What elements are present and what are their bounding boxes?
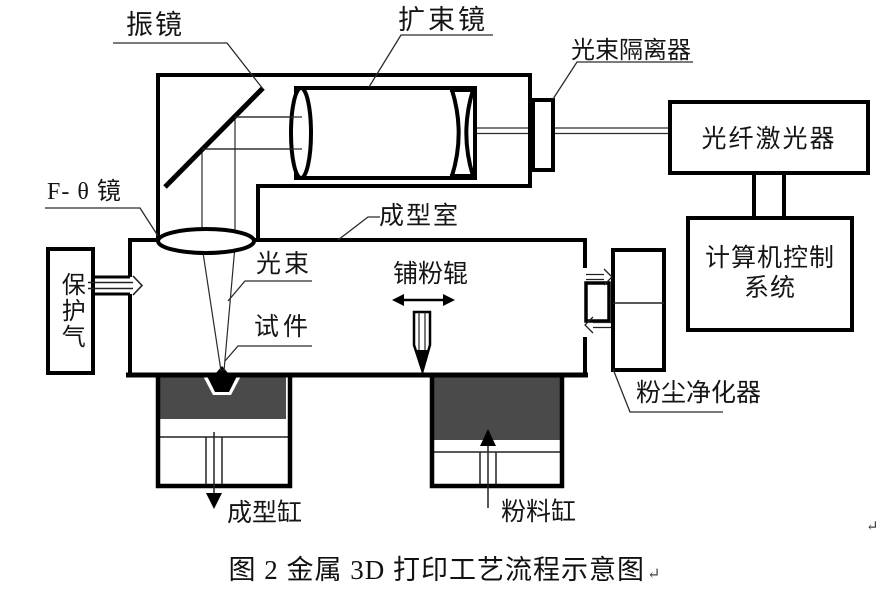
beam-expander-leader (369, 35, 493, 87)
dust-purifier-assembly (585, 250, 664, 370)
light-beam-label: 光束 (256, 252, 312, 278)
specimen-label: 试件 (254, 315, 312, 341)
fiber-laser-label: 光纤激光器 (670, 127, 868, 153)
galvanometer-mirror (165, 88, 263, 187)
down-arrow-icon (206, 493, 222, 509)
computer-control-label: 计算机控制 系统 (688, 244, 852, 304)
melt-spot (216, 366, 228, 373)
beam-expander-label: 扩束镜 (398, 6, 488, 34)
powder-cylinder-label: 粉料缸 (501, 500, 576, 526)
forming-chamber-leader (338, 217, 380, 240)
laser-computer-link (754, 173, 784, 218)
beam-expander-tube (296, 88, 475, 178)
right-arrowhead-icon (443, 294, 455, 306)
stray-paragraph-return-icon: ↵ (866, 517, 879, 536)
left-arrowhead-icon (392, 294, 404, 306)
f-theta-lens-label: F- θ 镜 (47, 180, 122, 205)
f-theta-leader (45, 208, 158, 236)
dust-purifier-label: 粉尘净化器 (636, 381, 761, 407)
scanner-head (158, 75, 553, 240)
figure-metal-3d-printing-schematic: 振镜 扩束镜 光束隔离器 F- θ 镜 成型室 光束 铺粉辊 试件 保护气 粉尘… (0, 0, 890, 600)
computer-control-label-line2: 系统 (688, 274, 852, 304)
figure-caption-row: 图 2 金属 3D 打印工艺流程示意图↵ (0, 548, 890, 587)
powder-cylinder (432, 375, 562, 508)
gas-inlet-duct (92, 277, 130, 294)
forming-chamber-label: 成型室 (379, 204, 460, 230)
figure-caption: 图 2 金属 3D 打印工艺流程示意图 (229, 555, 646, 585)
dust-purifier-box (613, 250, 664, 370)
protective-gas-label: 保护气 (57, 272, 82, 352)
f-theta-lens-shape (158, 229, 254, 253)
powder-supply-bed (434, 376, 560, 440)
paragraph-return-icon: ↵ (647, 566, 661, 583)
forming-chamber-outline (126, 238, 588, 375)
expander-convex-lens (291, 88, 311, 178)
roller-blade-tip (415, 350, 429, 371)
computer-control-label-line1: 计算机控制 (688, 244, 852, 274)
purifier-channel (586, 283, 609, 321)
light-beam-leader (228, 281, 312, 301)
forming-cylinder-label: 成型缸 (227, 501, 302, 527)
specimen-leader (225, 346, 312, 361)
galvanometer-label: 振镜 (126, 11, 184, 39)
beam-isolator-box (533, 100, 553, 170)
gas-flow-arrow-icon (88, 276, 142, 295)
powder-roller-assembly (392, 294, 455, 371)
forming-cylinder (158, 375, 290, 509)
beam-isolator-leader (553, 62, 693, 99)
beam-isolator-label: 光束隔离器 (571, 39, 691, 64)
galvanometer-leader (113, 43, 263, 89)
powder-roller-label: 铺粉辊 (393, 262, 468, 288)
